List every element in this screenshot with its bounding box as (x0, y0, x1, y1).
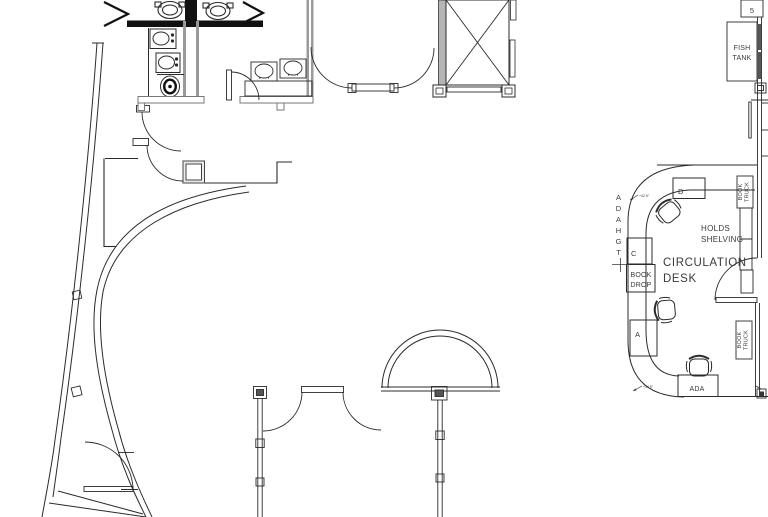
stall-door-left (104, 2, 128, 26)
storefront-entrance (254, 387, 501, 517)
floor-plan-canvas: FISH TANK 5 HOLDS SHELVING CIRCULATION D… (0, 0, 768, 517)
door-swing (263, 392, 302, 431)
wall-stub (138, 103, 145, 111)
column-marker (755, 83, 766, 93)
fish-tank-label-line1: FISH (734, 45, 751, 52)
elevator-wall-left (439, 0, 447, 86)
circulation-desk-label-line2: DESK (663, 273, 697, 285)
stall-divider-wall (185, 0, 197, 21)
shelf-bay-number-label: 5 (750, 6, 754, 15)
stall-door-right (243, 2, 263, 23)
book-drop-label-line2: DROP (630, 282, 651, 289)
book-drop-label-line1: BOOK (630, 272, 651, 279)
stall-front-wall (127, 21, 263, 28)
ramp-edge-line (49, 503, 146, 517)
restroom-chase-wall (196, 21, 199, 100)
ada-hgt-letter: T (616, 248, 621, 257)
ada-hgt-note: A D A H G T (612, 193, 629, 272)
holds-shelving-label-line2: SHELVING (701, 235, 743, 244)
mullion-marker (436, 431, 444, 440)
elevator-wall-right (511, 0, 517, 20)
fish-tank-label-line2: TANK (733, 55, 752, 62)
exterior-curved-wall (42, 43, 146, 517)
ada-hgt-letter: H (616, 226, 621, 235)
wall-segment (749, 102, 751, 138)
mullion-marker (436, 474, 444, 482)
vanity-counter (245, 59, 312, 96)
counter-a-label: A (635, 330, 640, 339)
hall-double-door (311, 47, 434, 93)
door-jamb (502, 85, 515, 97)
task-chair-3 (686, 356, 711, 376)
wall-mullion-marker (71, 386, 82, 397)
door-jamb (433, 85, 446, 97)
counter-c-label: C (631, 249, 637, 258)
book-truck-2-label-line2: TRUCK (744, 330, 750, 350)
ada-hgt-letter: A (616, 193, 621, 202)
shelf-segment (741, 270, 753, 293)
door-swing (343, 392, 381, 430)
dimension-lower: +34.5" (633, 385, 654, 391)
sink-2 (156, 53, 180, 73)
restroom-door (227, 70, 260, 100)
task-chair-1 (652, 195, 684, 227)
task-chair-2 (654, 297, 676, 324)
mullion-marker (256, 478, 264, 486)
book-truck-1-label-line1: BOOK (738, 184, 744, 201)
holds-shelving-label-line1: HOLDS (701, 224, 730, 233)
counter-d-label: D (678, 187, 684, 196)
sink-1 (150, 29, 176, 49)
corridor-door-upper (137, 106, 182, 152)
elevator (433, 0, 516, 97)
restrooms (104, 0, 314, 111)
book-truck-1-label-line2: TRUCK (745, 182, 751, 202)
toilet-1 (155, 2, 185, 19)
elevator-door-slab (447, 87, 501, 92)
door-leaf (302, 387, 344, 393)
door-leaf (716, 298, 757, 303)
toilet-2 (203, 3, 233, 20)
circulation-desk-label-line1: CIRCULATION (663, 257, 747, 269)
structural-column (183, 161, 205, 183)
ada-counter-label: ADA (690, 386, 705, 393)
ada-hgt-letter: D (616, 204, 622, 213)
mullion-marker (256, 439, 264, 448)
annotations: FISH TANK 5 HOLDS SHELVING CIRCULATION D… (612, 6, 754, 393)
ada-hgt-letter: G (616, 237, 622, 246)
dim-upper-text: +42.5" (639, 194, 650, 198)
restroom-right-wall (307, 0, 310, 103)
restroom-chase-wall (183, 21, 186, 100)
floor-plan-drawing: FISH TANK 5 HOLDS SHELVING CIRCULATION D… (0, 0, 768, 517)
corridor-door-lower (133, 139, 183, 182)
ada-hgt-letter: A (616, 215, 621, 224)
elevator-wall-right (510, 40, 515, 77)
book-truck-2-label-line1: BOOK (737, 332, 743, 349)
dim-lower-text: +34.5" (643, 385, 654, 389)
wall-stub (277, 103, 284, 110)
restroom-bottom-wall (138, 97, 204, 104)
floor-fixture (161, 76, 180, 97)
interior-curved-wall (94, 186, 249, 517)
arched-entry-canopy (382, 330, 498, 388)
restroom-bottom-wall (240, 97, 313, 104)
